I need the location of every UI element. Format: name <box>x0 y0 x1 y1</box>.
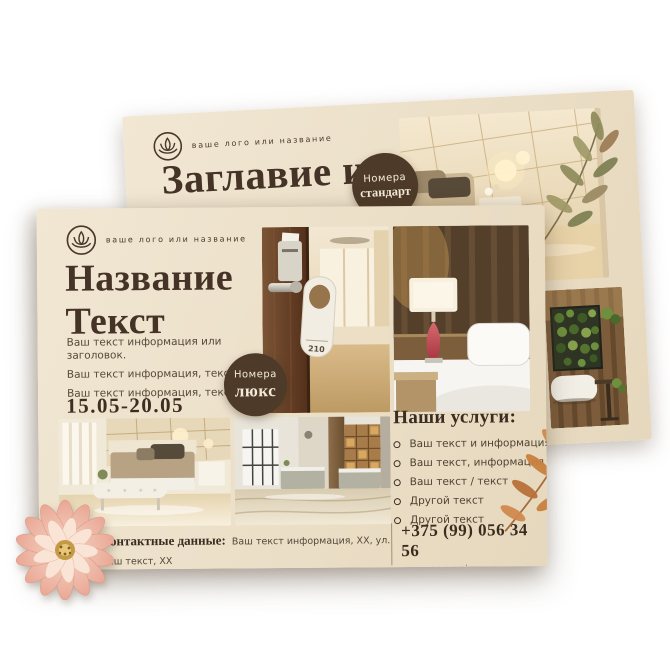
ring-bullet-icon <box>394 479 401 486</box>
front-logo: ваше лого или название <box>65 222 247 256</box>
contacts-section: Контактные данные:Ваш текст информация, … <box>101 528 394 570</box>
ring-bullet-icon <box>394 498 401 505</box>
photo-lobby-reception <box>234 416 391 525</box>
lotus-logo-icon <box>65 224 98 257</box>
front-title: Название Текст <box>65 256 234 343</box>
front-logo-text: ваше лого или название <box>106 234 247 244</box>
door-tag-number: 210 <box>308 344 326 354</box>
bedroom-lamp-illustration <box>393 225 530 412</box>
dahlia-flower-icon <box>13 496 117 600</box>
website-url: www. nazvanie.com <box>401 564 547 570</box>
orange-leaf-branch-icon <box>490 413 547 534</box>
door-tag: 210 <box>300 276 337 358</box>
date-range: 15.05-20.05 <box>66 393 184 419</box>
badge-back-line2: стандарт <box>360 183 412 201</box>
photo-plant-wall <box>544 287 629 429</box>
back-logo-text: ваше лого или название <box>192 133 333 149</box>
badge-front-line2: люкс <box>235 381 277 401</box>
ring-bullet-icon <box>394 460 401 467</box>
service-item-label: Другой текст <box>410 494 484 507</box>
mockup-stage: ваше лого или название Заглавие илиБ инф… <box>0 0 670 670</box>
badge-front-line1: Номера <box>234 369 277 380</box>
badge-rooms-lux: Номера люкс <box>224 353 287 416</box>
badge-back-line1: Номера <box>363 171 406 184</box>
contacts-label: Контактные данные: <box>101 533 226 549</box>
photo-bedroom-lamp <box>393 225 530 412</box>
plant-wall-illustration <box>544 287 629 429</box>
ring-bullet-icon <box>394 517 401 524</box>
lobby-illustration <box>234 416 391 525</box>
ring-bullet-icon <box>393 441 400 448</box>
front-title-line1: Название <box>65 256 233 300</box>
